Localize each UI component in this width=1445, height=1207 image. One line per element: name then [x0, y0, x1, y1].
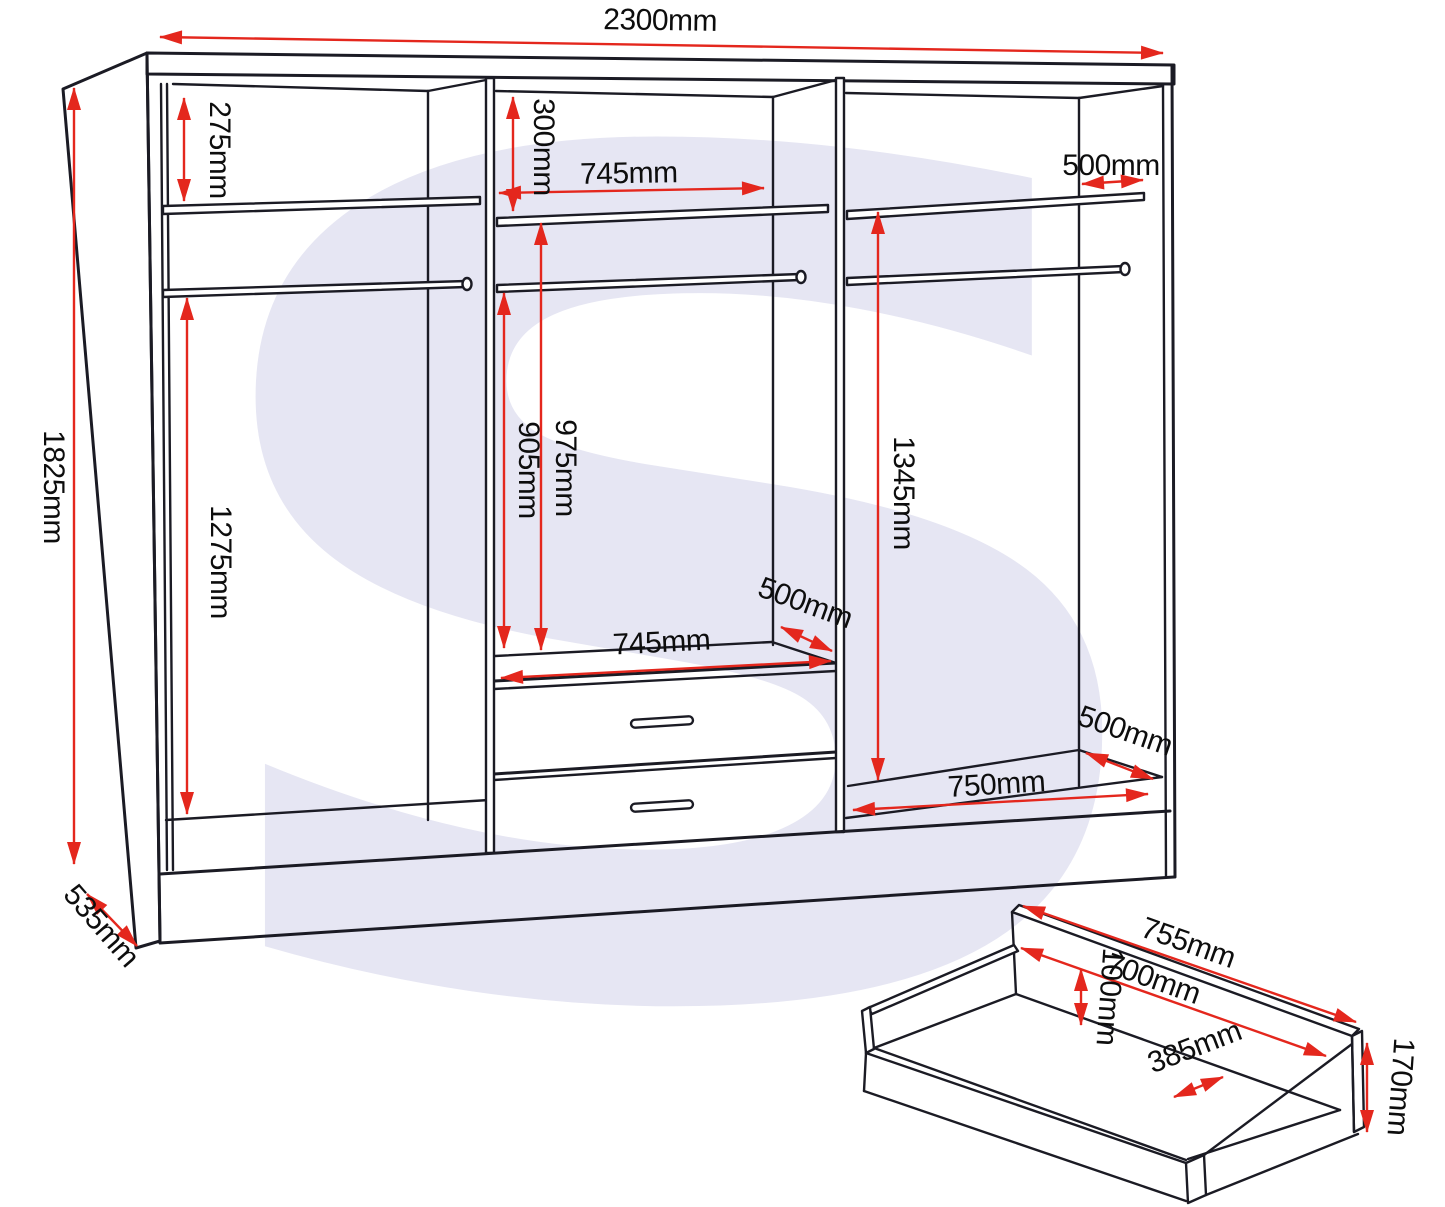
dim-drawer-top-width: 745mm	[612, 623, 711, 661]
wardrobe-dimension-diagram: S	[0, 0, 1445, 1207]
drawer-right-wall-bottom	[1206, 1134, 1358, 1195]
dim-overall-width: 2300mm	[603, 3, 717, 38]
dim-middle-shelf-drop: 975mm	[549, 419, 582, 517]
divider1-front	[486, 78, 494, 853]
dim-overall-height: 1825mm	[37, 430, 70, 544]
divider2-front	[836, 78, 844, 832]
left-side-panel	[63, 53, 160, 948]
dim-left-top-shelf: 275mm	[203, 101, 236, 199]
dim-middle-rail-drop: 905mm	[512, 421, 545, 519]
dim-drawer-side-height: 100mm	[1090, 947, 1130, 1047]
drawer-right-wall-top	[1204, 1044, 1352, 1155]
watermark-letter: S	[150, 0, 1210, 1207]
drawer-front-wall-end	[1186, 1155, 1206, 1203]
brand-watermark: S	[150, 0, 1210, 1207]
dim-middle-top-gap: 300mm	[527, 98, 560, 196]
dim-right-shelf-depth: 500mm	[1062, 149, 1160, 182]
dim-middle-shelf-width: 745mm	[580, 156, 678, 191]
dim-left-hanging: 1275mm	[204, 505, 237, 619]
dim-right-height: 1345mm	[887, 436, 920, 550]
dim-drawer-front-height: 170mm	[1381, 1037, 1421, 1137]
dim-right-base-width: 750mm	[947, 765, 1046, 804]
diagram-canvas: S	[0, 0, 1445, 1207]
